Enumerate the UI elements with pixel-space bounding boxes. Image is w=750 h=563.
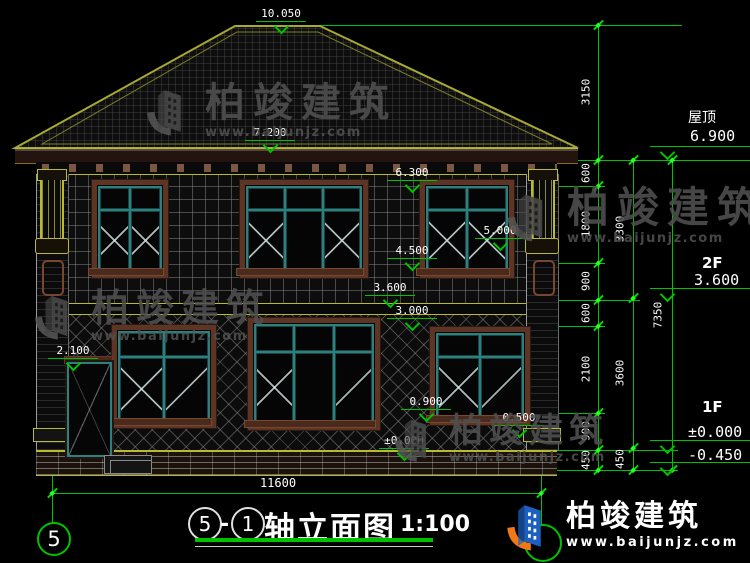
level-10050: 10.050 bbox=[251, 2, 311, 32]
title-underline-white bbox=[195, 546, 433, 547]
watermark-url: www.baijunjz.com bbox=[567, 232, 750, 245]
left-column-shaft bbox=[40, 180, 64, 239]
level-3000: 3.000 bbox=[382, 299, 442, 329]
sill-2f-center bbox=[236, 268, 364, 276]
brand-watermark-icon bbox=[388, 412, 442, 466]
brand-watermark-icon bbox=[28, 288, 84, 344]
neg450-level-value: -0.450 bbox=[688, 446, 742, 464]
right-pier-panel bbox=[533, 260, 555, 296]
dim-7350: 7350 bbox=[652, 302, 665, 329]
watermark-left: 柏竣建筑 www.baijunjz.com bbox=[28, 288, 271, 344]
dim-900a: 900 bbox=[580, 271, 593, 291]
sill-1f-center bbox=[244, 420, 376, 428]
brand-watermark-icon bbox=[500, 186, 560, 246]
dim-3600: 3600 bbox=[614, 360, 627, 387]
dim-450b: 450 bbox=[614, 449, 627, 469]
watermark-bottom: 柏竣建筑 www.baijunjz.com bbox=[388, 412, 609, 466]
watermark-right: 柏竣建筑 www.baijunjz.com bbox=[500, 186, 750, 246]
level-6300: 6.300 bbox=[382, 161, 442, 191]
level-4500: 4.500 bbox=[382, 239, 442, 269]
dim-3150: 3150 bbox=[580, 79, 593, 106]
sill-2f-right bbox=[416, 268, 510, 276]
watermark-url: www.baijunjz.com bbox=[91, 330, 271, 343]
axis-bubble-left: 5 bbox=[37, 522, 71, 556]
watermark-url: www.baijunjz.com bbox=[449, 451, 609, 464]
window-2f-left bbox=[92, 180, 168, 278]
roof-level-value: 6.900 bbox=[690, 127, 735, 145]
dim-600a: 600 bbox=[580, 163, 593, 183]
title-axis-bubble-5: 5 bbox=[188, 507, 222, 541]
sill-1f-left bbox=[108, 418, 212, 426]
watermark-roof: 柏竣建筑 www.baijunjz.com bbox=[140, 82, 397, 140]
1f-level-value: ±0.000 bbox=[688, 423, 742, 441]
2f-level-value: 3.600 bbox=[694, 271, 739, 289]
elevation-drawing-canvas: 5 11600 3150 600 1800 900 600 2100 900 4… bbox=[0, 0, 750, 563]
entry-door bbox=[67, 362, 112, 457]
watermark-name: 柏竣建筑 bbox=[91, 289, 271, 327]
brand-logo-url: www.baijunjz.com bbox=[566, 535, 739, 550]
watermark-name: 柏竣建筑 bbox=[449, 414, 609, 448]
roof-level-name: 屋顶 bbox=[688, 107, 716, 127]
drawing-scale: 1:100 bbox=[400, 512, 470, 537]
window-2f-center bbox=[240, 180, 368, 278]
title-axis-bubble-1: 1 bbox=[231, 507, 265, 541]
watermark-name: 柏竣建筑 bbox=[205, 83, 397, 123]
left-pier-base-molding bbox=[33, 428, 71, 442]
sill-2f-left bbox=[88, 268, 164, 276]
entry-step-2 bbox=[110, 460, 152, 474]
2f-level-name: 2F bbox=[702, 254, 723, 272]
watermark-name: 柏竣建筑 bbox=[567, 187, 750, 229]
axis-bubble-left-label: 5 bbox=[47, 527, 60, 551]
left-column-base bbox=[35, 238, 69, 254]
brand-logo-name: 柏竣建筑 bbox=[566, 502, 739, 532]
brand-logo-icon bbox=[500, 496, 558, 556]
dim-2100: 2100 bbox=[580, 356, 593, 383]
title-axis-sep: - bbox=[220, 512, 229, 537]
dim-600b: 600 bbox=[580, 303, 593, 323]
watermark-url: www.baijunjz.com bbox=[205, 126, 397, 139]
bottom-dim-text: 11600 bbox=[248, 476, 308, 490]
brand-watermark-icon bbox=[140, 82, 198, 140]
dentil-band bbox=[36, 162, 557, 175]
title-underline-green bbox=[195, 538, 433, 542]
brand-logo: 柏竣建筑 www.baijunjz.com bbox=[500, 496, 739, 556]
1f-level-name: 1F bbox=[702, 398, 723, 416]
